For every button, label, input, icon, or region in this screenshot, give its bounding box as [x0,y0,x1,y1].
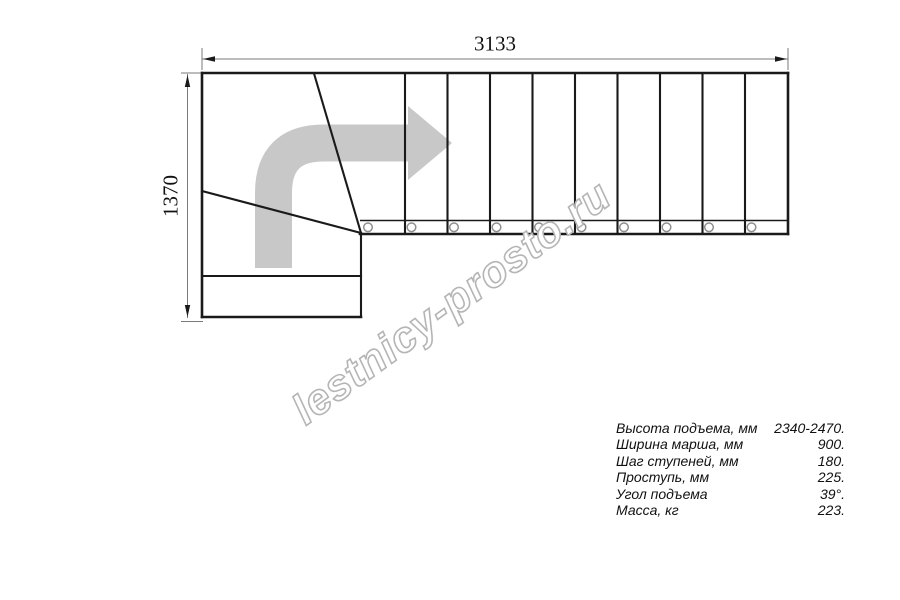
direction-arrow-head [408,106,452,180]
baluster-circle [705,223,714,232]
baluster-circle [747,223,756,232]
spec-value: 223. [818,502,845,518]
spec-value: 39°. [820,486,845,502]
spec-table: Высота подъема, мм 2340-2470. Ширина мар… [616,420,845,518]
spec-row: Шаг ступеней, мм 180. [616,453,845,469]
spec-label: Ширина марша, мм [616,436,743,452]
dimension-arrow-top [185,75,190,87]
baluster-circle [450,223,459,232]
spec-label: Высота подъема, мм [616,420,758,436]
direction-arrow [274,106,453,268]
spec-value: 225. [818,469,845,485]
spec-value: 180. [818,453,845,469]
spec-value: 900. [818,436,845,452]
spec-label: Шаг ступеней, мм [616,453,739,469]
spec-label: Угол подъема [616,486,708,502]
baluster-circle [407,223,416,232]
spec-row: Ширина марша, мм 900. [616,436,845,452]
spec-value: 2340-2470. [774,420,845,436]
dimension-arrow-bottom [185,305,190,317]
spec-row: Масса, кг 223. [616,502,845,518]
spec-label: Проступь, мм [616,469,709,485]
baluster-circle [492,223,501,232]
height-dimension-label: 1370 [159,175,184,217]
baluster-circle [364,223,373,232]
baluster-circle [662,223,671,232]
dimension-arrow-right [775,56,787,61]
dimension-arrow-left [203,56,215,61]
spec-row: Проступь, мм 225. [616,469,845,485]
height-dimension [181,73,203,322]
spec-row: Высота подъема, мм 2340-2470. [616,420,845,436]
spec-label: Масса, кг [616,502,679,518]
staircase-drawing-page: 3133 1370 lestnicy-prosto.ru Высота подъ… [0,0,900,600]
spec-row: Угол подъема 39°. [616,486,845,502]
width-dimension-label: 3133 [474,32,516,57]
baluster-circle [620,223,629,232]
